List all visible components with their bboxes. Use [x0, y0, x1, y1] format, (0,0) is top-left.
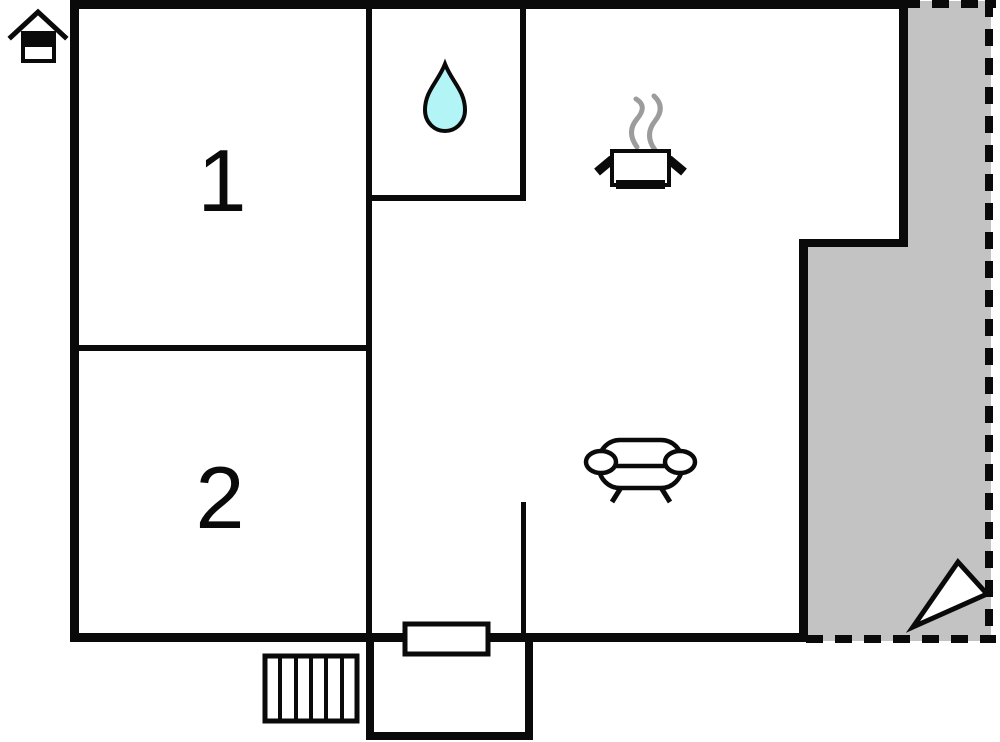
room-2-label: 2: [196, 448, 245, 547]
stairs-icon: [265, 656, 357, 721]
wall-segment: [70, 0, 908, 9]
wall-segment: [79, 345, 369, 351]
wall-segment: [366, 732, 533, 740]
wall-segment: [70, 0, 79, 642]
pot-base: [616, 180, 665, 189]
sofa-icon: [586, 440, 695, 502]
wall-segment: [799, 239, 908, 247]
steam-lines: [632, 96, 661, 150]
cooking-pot-icon: [594, 96, 687, 189]
water-drop-icon: [425, 64, 465, 131]
door-symbol: [405, 624, 488, 654]
floor-plan-canvas: 1 2: [0, 0, 1000, 742]
house-icon: [11, 12, 65, 61]
sofa-armrest: [586, 451, 616, 473]
floor-plan: 1 2: [0, 0, 1000, 742]
sofa-armrest: [665, 451, 695, 473]
wall-segment: [366, 195, 526, 201]
wall-segment: [520, 0, 526, 200]
wall-segment: [799, 239, 808, 642]
wall-segment: [366, 636, 374, 740]
pot-body: [612, 151, 669, 185]
wall-segment: [366, 0, 372, 642]
wall-segment: [521, 502, 526, 638]
wall-segment: [899, 0, 908, 247]
room-1-label: 1: [198, 131, 247, 230]
wall-segment: [525, 636, 533, 740]
terrace-area: [805, 1, 991, 641]
house-band: [21, 31, 56, 47]
